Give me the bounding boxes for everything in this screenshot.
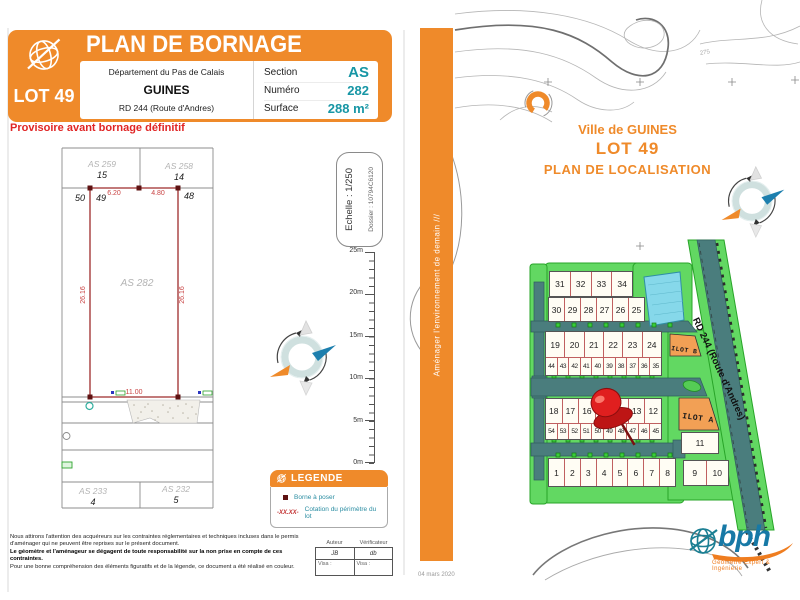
cotation-symbol: -XX.XX- — [277, 510, 299, 516]
lot-block-18-12-54-45: 18171615141312 54535251504948474645 — [545, 398, 662, 440]
legend-body: Borne à poser -XX.XX- Cotation du périmè… — [270, 487, 388, 528]
lot-outline — [90, 188, 178, 397]
scale-value: Echelle : 1/250 — [344, 168, 355, 231]
commune-label: GUINES — [80, 83, 253, 97]
borne-square-icon — [283, 495, 288, 500]
lot-row: 910 — [684, 461, 728, 485]
footer-notes: Nous attirons l'attention des acquéreurs… — [10, 534, 306, 573]
legend-item-label: Borne à poser — [294, 494, 335, 501]
footer-paragraph: Le géomètre et l'aménageur se dégagent d… — [10, 549, 306, 562]
lot-number: 53 — [557, 424, 569, 439]
date-label: 04 mars 2020 — [418, 572, 455, 578]
ruler-tick-label: 25m — [349, 247, 363, 255]
lot-number: 51 — [580, 424, 592, 439]
scale-box: Echelle : 1/250 Dossier : 10794C6120 — [336, 152, 383, 247]
legend-item-label: Cotation du périmètre du lot — [305, 506, 381, 520]
point-label: 4 — [90, 497, 95, 507]
bph-logo-text: bph — [718, 520, 770, 554]
marker-blue-left — [111, 391, 114, 394]
lot-number: 46 — [638, 424, 650, 439]
lot-badge: LOT 49 — [8, 30, 80, 122]
lot-number: 5 — [612, 459, 628, 486]
lot-number: 17 — [562, 399, 579, 423]
parcel-label: AS 259 — [87, 159, 116, 169]
lot-row: 44434241403938373635 — [546, 357, 661, 375]
lot-block-30-25: 302928272625 — [548, 297, 645, 322]
col-header: Vérificateur — [354, 540, 393, 546]
point-label: 49 — [96, 193, 106, 203]
lot-number: 24 — [642, 332, 661, 357]
point-label: 15 — [97, 170, 108, 180]
lot-number: 4 — [596, 459, 612, 486]
dim-label: 4.80 — [151, 190, 165, 197]
bph-logo-tagline: Géomètre Expert & Ingénierie — [712, 560, 800, 572]
footer-paragraph: Pour une bonne compréhension des élément… — [10, 564, 306, 571]
lot-number: 30 — [549, 298, 564, 321]
lot-row: 192021222324 — [546, 332, 661, 357]
ruler-tick-label: 10m — [349, 374, 363, 382]
dim-label: 11.00 — [126, 389, 143, 396]
lot-number: 42 — [568, 358, 580, 375]
lot-row: 12345678 — [549, 459, 675, 486]
roundabout-icon — [518, 83, 557, 122]
author-table-headers: Auteur Vérificateur — [315, 540, 393, 546]
field-value: 288 m² — [328, 101, 369, 116]
lot-number: 10 — [706, 461, 729, 485]
lot-number: 31 — [550, 272, 570, 296]
north-compass-icon — [270, 321, 336, 395]
globe-icon — [275, 472, 288, 485]
drawing-labels: AS 259 15 AS 258 14 50 49 48 6.20 4.80 2… — [75, 159, 194, 507]
pond — [644, 272, 684, 326]
lot-number: 27 — [596, 298, 612, 321]
field-label: Surface — [264, 103, 298, 114]
ruler-tick-label: 20m — [349, 289, 363, 297]
field-section: Section AS — [264, 64, 369, 81]
lot-number: 34 — [611, 272, 632, 296]
lot-11: 11 — [681, 432, 719, 454]
table-cell: Visa : — [354, 560, 393, 575]
table-row: JB db — [316, 548, 392, 559]
ruler-labels: 25m20m15m10m5m0m — [336, 247, 363, 467]
scale-ruler — [374, 252, 375, 463]
lot-number: 43 — [557, 358, 569, 375]
lot-number: 16 — [578, 399, 595, 423]
table-cell: JB — [316, 548, 354, 559]
north-compass-icon — [722, 167, 785, 237]
legend-title: LEGENDE — [291, 473, 343, 484]
lot-number: 23 — [622, 332, 641, 357]
lot-number: 18 — [546, 399, 562, 423]
green-box-icon — [62, 462, 72, 468]
lot-number: 28 — [580, 298, 596, 321]
lot-number: 1 — [549, 459, 564, 486]
lot-number: 38 — [615, 358, 627, 375]
lot-number: 37 — [626, 358, 638, 375]
divider-bar: Aménager l'environnement de demain /// — [420, 28, 453, 561]
manhole-icon — [63, 433, 70, 440]
marker-green-right — [203, 391, 212, 395]
lot-number: 33 — [591, 272, 612, 296]
provisional-note: Provisoire avant bornage définitif — [10, 122, 185, 134]
lot-number: 26 — [612, 298, 628, 321]
path-area — [127, 400, 200, 423]
boundary-plan-drawing: AS 259 15 AS 258 14 50 49 48 6.20 4.80 2… — [62, 148, 213, 508]
parcel-label: AS 258 — [164, 161, 193, 171]
field-surface: Surface 288 m² — [264, 100, 369, 116]
lot-row: 31323334 — [550, 272, 632, 296]
lot-number: 49 — [603, 424, 615, 439]
globe-icon — [20, 31, 69, 80]
author-table: Auteur Vérificateur JB db Visa : Visa : — [315, 540, 393, 576]
ruler-tick — [365, 294, 374, 295]
point-label: 48 — [184, 191, 194, 201]
utility-circle-icon — [86, 403, 93, 410]
lot-number: 29 — [564, 298, 580, 321]
parcel-label: AS 233 — [78, 486, 107, 496]
field-numero: Numéro 282 — [264, 82, 369, 98]
lot-badge-label: LOT 49 — [8, 86, 80, 107]
lot-number: 48 — [615, 424, 627, 439]
dossier-number: Dossier : 10794C6120 — [368, 167, 375, 232]
ruler-tick — [365, 252, 374, 253]
parcel-label: AS 232 — [161, 484, 190, 494]
ruler-tick — [365, 378, 374, 379]
marker-green-left — [116, 391, 125, 395]
location-info: Département du Pas de Calais GUINES RD 2… — [80, 61, 254, 119]
map-title-type: PLAN DE LOCALISATION — [455, 162, 800, 177]
lot-number: 9 — [684, 461, 706, 485]
legend: LEGENDE Borne à poser -XX.XX- Cotation d… — [270, 470, 388, 528]
title-block: Département du Pas de Calais GUINES RD 2… — [80, 61, 378, 119]
lot-number: 25 — [628, 298, 644, 321]
field-value: 282 — [347, 83, 369, 98]
lot-number: 3 — [580, 459, 596, 486]
lot-block-9-10: 910 — [683, 460, 729, 486]
lot-number: 45 — [649, 424, 661, 439]
lot-block-31-34: 31323334 — [549, 271, 633, 297]
marker-blue-right — [198, 391, 201, 394]
road-label: RD 244 (Route d'Andres) — [80, 103, 253, 113]
dim-label: 26.16 — [179, 286, 186, 304]
lot-number: 54 — [546, 424, 557, 439]
bph-globe-icon — [690, 529, 717, 553]
lot-number: 6 — [627, 459, 643, 486]
ruler-tick — [365, 462, 374, 463]
lot-number: 41 — [580, 358, 592, 375]
departement-label: Département du Pas de Calais — [80, 67, 253, 77]
map-title-city: Ville de GUINES — [455, 122, 800, 137]
lot-number: 40 — [591, 358, 603, 375]
lot-number: 44 — [546, 358, 557, 375]
legend-item: -XX.XX- Cotation du périmètre du lot — [277, 506, 381, 520]
cadastre-fields: Section AS Numéro 282 Surface 288 m² — [254, 61, 378, 119]
point-label: 50 — [75, 193, 85, 203]
parcel-label: AS 282 — [120, 278, 154, 289]
lot-row: 54535251504948474645 — [546, 423, 661, 439]
ruler-tick-label: 5m — [353, 417, 363, 425]
lot-number: 7 — [643, 459, 659, 486]
lot-number: 14 — [611, 399, 628, 423]
point-label: 14 — [174, 172, 184, 182]
legend-item: Borne à poser — [277, 494, 381, 501]
lot-number: 8 — [659, 459, 675, 486]
plan-de-bornage-document: AS 259 15 AS 258 14 50 49 48 6.20 4.80 2… — [0, 0, 800, 600]
lot-number: 12 — [644, 399, 661, 423]
lot-number: 15 — [595, 399, 612, 423]
ruler-tick-label: 15m — [349, 332, 363, 340]
author-table-box: JB db Visa : Visa : — [315, 547, 393, 576]
table-row: Visa : Visa : — [316, 559, 392, 575]
lot-number: 47 — [626, 424, 638, 439]
lot-number: 2 — [564, 459, 580, 486]
col-header: Auteur — [315, 540, 354, 546]
dim-label: 26.16 — [80, 286, 87, 304]
footer-paragraph: Nous attirons l'attention des acquéreurs… — [10, 534, 306, 547]
lot-number: 35 — [649, 358, 661, 375]
lot-number: 20 — [564, 332, 583, 357]
lot-number: 22 — [603, 332, 622, 357]
map-title-lot: LOT 49 — [455, 139, 800, 159]
lot-number: 36 — [638, 358, 650, 375]
table-cell: db — [354, 548, 393, 559]
lot-block-19-24-44-35: 192021222324 44434241403938373635 — [545, 331, 662, 376]
lot-number: 39 — [603, 358, 615, 375]
lot-number: 32 — [570, 272, 591, 296]
lot-number: 19 — [546, 332, 564, 357]
lot-number: 13 — [628, 399, 645, 423]
borne-markers — [88, 186, 181, 400]
field-label: Section — [264, 67, 297, 78]
field-value: AS — [348, 64, 369, 81]
field-label: Numéro — [264, 85, 300, 96]
point-label: 5 — [173, 495, 179, 505]
lot-number: 52 — [568, 424, 580, 439]
table-cell: Visa : — [316, 560, 354, 575]
legend-header: LEGENDE — [270, 470, 388, 487]
lot-number: 50 — [591, 424, 603, 439]
page-title: PLAN DE BORNAGE — [86, 31, 302, 59]
lot-block-1-8: 12345678 — [548, 458, 676, 487]
lot-number: 21 — [584, 332, 603, 357]
ruler-tick-label: 0m — [353, 459, 363, 467]
ruler-tick — [365, 336, 374, 337]
dim-label: 6.20 — [107, 190, 121, 197]
lot-row: 18171615141312 — [546, 399, 661, 423]
ruler-tick — [365, 420, 374, 421]
slogan-text: Aménager l'environnement de demain /// — [432, 213, 441, 376]
lot-row: 302928272625 — [549, 298, 644, 321]
